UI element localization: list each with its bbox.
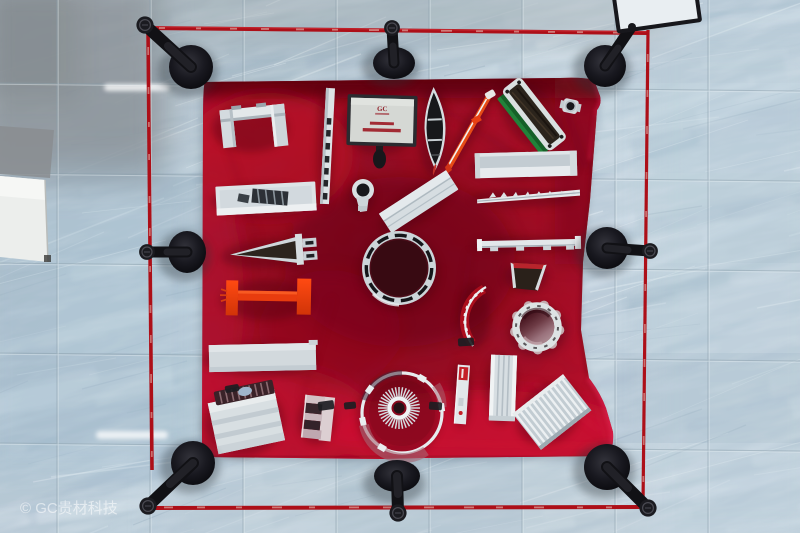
svg-text:GC: GC [377,105,388,113]
svg-text:© GC贵材科技: © GC贵材科技 [20,500,118,517]
